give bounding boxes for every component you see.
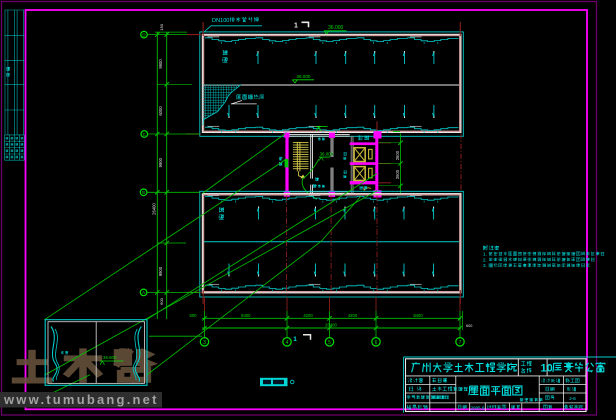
svg-text:D: D (142, 32, 145, 37)
svg-text:6000: 6000 (158, 106, 163, 116)
svg-text:600: 600 (190, 313, 198, 318)
svg-text:10: 10 (541, 363, 553, 375)
svg-text:9900: 9900 (158, 59, 163, 69)
svg-text:DN100: DN100 (212, 18, 229, 24)
svg-text:36.000: 36.000 (328, 25, 344, 31)
svg-text:5: 5 (328, 340, 331, 346)
svg-text:1.: 1. (483, 252, 487, 257)
svg-text:150: 150 (159, 23, 164, 30)
svg-text:600: 600 (466, 324, 472, 328)
svg-text:2005.6: 2005.6 (470, 405, 484, 410)
svg-text:6: 6 (375, 340, 378, 346)
svg-text:8400: 8400 (413, 313, 423, 318)
svg-text:A: A (142, 290, 145, 295)
svg-text:2600: 2600 (395, 150, 400, 160)
svg-text:1: 1 (293, 336, 297, 343)
svg-text:4: 4 (286, 340, 289, 346)
svg-text:36.000: 36.000 (296, 74, 310, 79)
svg-text:www.tumubang.net: www.tumubang.net (3, 392, 159, 407)
svg-text:4200: 4200 (348, 313, 358, 318)
svg-text:8400: 8400 (241, 313, 251, 318)
svg-text:7: 7 (459, 340, 462, 346)
svg-text:C: C (143, 132, 146, 137)
svg-text:2.: 2. (483, 257, 487, 262)
svg-text:1: 1 (294, 23, 298, 30)
svg-text:26400: 26400 (325, 323, 337, 328)
svg-text:36.600: 36.600 (103, 355, 117, 360)
svg-text:B: B (142, 190, 145, 195)
svg-text:2600: 2600 (395, 169, 400, 179)
svg-text:9900: 9900 (158, 266, 163, 276)
svg-text:J-6: J-6 (569, 396, 576, 402)
svg-text:9900: 9900 (158, 157, 163, 167)
svg-text:4200: 4200 (303, 313, 313, 318)
svg-text:3: 3 (203, 340, 206, 346)
svg-text:600: 600 (159, 297, 164, 304)
svg-text:3.: 3. (483, 263, 487, 268)
svg-text:26400: 26400 (152, 203, 157, 215)
svg-text:36.000: 36.000 (320, 152, 334, 157)
